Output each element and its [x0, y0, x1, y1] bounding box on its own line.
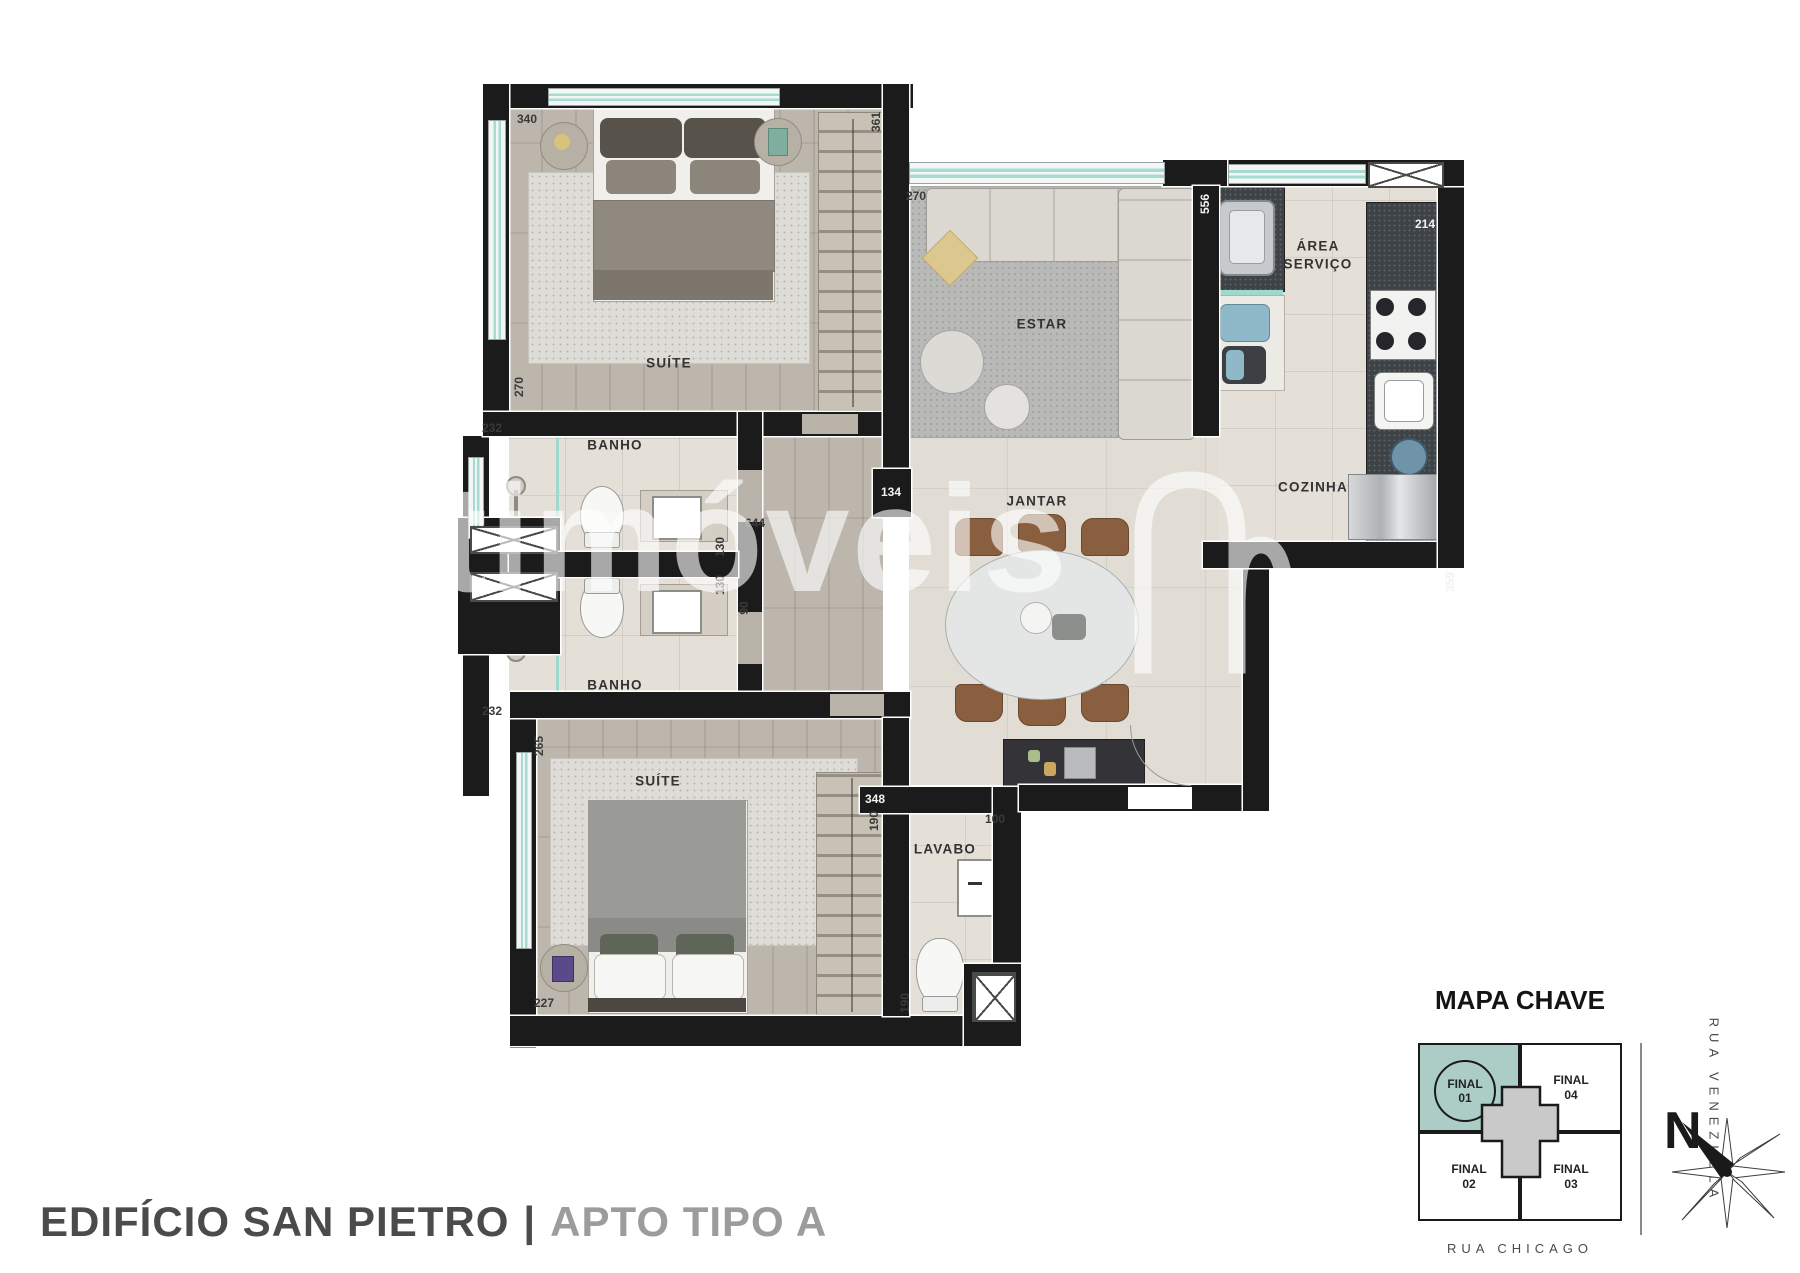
key-map-title: MAPA CHAVE: [1418, 985, 1622, 1016]
room-label: BANHO: [587, 438, 643, 453]
kitchen-sink-basin: [1384, 380, 1424, 422]
table-decor-plate: [1020, 602, 1052, 634]
pot-icon: [1390, 438, 1428, 476]
dining-chair: [955, 518, 1003, 556]
coffee-machine-icon: [1064, 747, 1096, 779]
toilet-tank-banho2: [584, 578, 620, 594]
shower-pipe: [514, 490, 518, 516]
room-label: COZINHA: [1278, 480, 1348, 495]
pillow-white-left: [594, 954, 666, 1000]
wall: [1193, 186, 1219, 436]
dimension-label: 130: [713, 575, 727, 595]
dining-chair: [1018, 514, 1066, 552]
duvet-suite1: [593, 200, 775, 272]
table-decor-tray: [1052, 614, 1086, 640]
dimension-label: 134: [881, 485, 901, 499]
dimension-label: 265: [532, 736, 546, 756]
lavabo-toilet-tank: [922, 996, 958, 1012]
compass-icon: N: [1652, 1072, 1800, 1252]
shaft-icon: [974, 974, 1016, 1022]
wall: [883, 718, 909, 1016]
dimension-label: 190: [898, 993, 912, 1013]
dining-chair: [1081, 518, 1129, 556]
room-label: JANTAR: [1007, 494, 1068, 509]
door-opening: [738, 612, 762, 664]
lavabo-faucet-icon: [968, 882, 982, 885]
lamp-icon: [554, 134, 570, 150]
entry-door-opening: [1128, 787, 1192, 809]
linen-closet-icon: [470, 526, 558, 554]
dimension-label: 348: [865, 792, 885, 806]
street-border-line: [1640, 1043, 1642, 1235]
pillow-white-right: [672, 954, 744, 1000]
building-name: EDIFÍCIO SAN PIETRO: [40, 1198, 509, 1245]
dimension-label: 232: [482, 704, 502, 718]
dimension-label: 90: [737, 601, 751, 614]
dimension-label: 556: [1198, 194, 1212, 214]
unit-type: APTO TIPO A: [550, 1198, 827, 1245]
dimension-label: 644: [745, 516, 765, 530]
wall: [1243, 542, 1269, 811]
pillow-dark-left: [600, 118, 682, 158]
burner: [1376, 298, 1394, 316]
room-label: LAVABO: [914, 842, 976, 857]
room-label: ESTAR: [1017, 317, 1068, 332]
room-label: ÁREA SERVIÇO: [1273, 237, 1363, 272]
dimension-label: 340: [517, 112, 537, 126]
page-title: EDIFÍCIO SAN PIETRO|APTO TIPO A: [40, 1198, 827, 1246]
window: [516, 752, 532, 949]
dimension-label: 227: [534, 996, 554, 1010]
dimension-label: 190: [867, 811, 881, 831]
dimension-label: 359: [1443, 572, 1457, 592]
title-separator: |: [523, 1198, 536, 1245]
pouf-small: [984, 384, 1030, 430]
kitchen-window-icon: [1368, 162, 1444, 188]
street-name-bottom: RUA CHICAGO: [1418, 1241, 1622, 1256]
duvet-band-suite1: [593, 270, 773, 300]
compass-north-label: N: [1664, 1102, 1702, 1160]
burner: [1376, 332, 1394, 350]
dryer-lid: [1226, 350, 1244, 380]
key-map-core-icon: [1418, 1043, 1622, 1221]
dimension-label: 232: [482, 421, 502, 435]
basin-banho2: [652, 590, 702, 634]
window: [1228, 164, 1366, 184]
suite1-closet-hangers: [818, 112, 885, 414]
wall: [1163, 160, 1227, 186]
fridge-icon: [1348, 474, 1442, 540]
floor-plan: 3403612705562142322706441301309013423226…: [428, 72, 1468, 1057]
door-opening: [802, 414, 858, 434]
dimension-label: 270: [906, 189, 926, 203]
washer-icon: [1220, 304, 1270, 342]
sofa-right-section: [1118, 188, 1195, 440]
room-label: SUÍTE: [646, 356, 692, 371]
pouf-large: [920, 330, 984, 394]
wall: [510, 1016, 1022, 1046]
dimension-label: 361: [869, 112, 883, 132]
door-opening: [830, 694, 884, 716]
lavabo-sink: [957, 859, 997, 917]
toilet-tank-banho1: [584, 532, 620, 548]
dimension-label: 100: [985, 812, 1005, 826]
wall: [738, 412, 762, 718]
book-decor: [768, 128, 788, 156]
door-opening: [738, 470, 762, 522]
window: [909, 162, 1165, 184]
room-label: SUÍTE: [635, 774, 681, 789]
headboard-suite2: [588, 998, 746, 1012]
wall: [1203, 542, 1464, 568]
console-decor: [1044, 762, 1056, 776]
linen-closet-icon: [470, 572, 558, 602]
burner: [1408, 298, 1426, 316]
console-decor: [1028, 750, 1040, 762]
key-map-building: FINAL 01 FINAL 04 FINAL 02 FINAL 03: [1418, 1043, 1622, 1221]
service-sink-basin: [1229, 210, 1265, 264]
duvet-suite2: [588, 800, 746, 920]
cushion-left: [606, 160, 676, 194]
room-label: BANHO: [587, 678, 643, 693]
cushion-right: [690, 160, 760, 194]
window: [548, 88, 780, 106]
book-decor: [552, 956, 574, 982]
dimension-label: 130: [713, 537, 727, 557]
basin-banho1: [652, 496, 702, 540]
dimension-label: 270: [512, 377, 526, 397]
burner: [1408, 332, 1426, 350]
window: [488, 120, 506, 340]
page: { "footer": { "building": "EDIFÍCIO SAN …: [0, 0, 1800, 1273]
dimension-label: 214: [1415, 217, 1435, 231]
wall: [1438, 160, 1464, 568]
wall: [883, 84, 909, 469]
